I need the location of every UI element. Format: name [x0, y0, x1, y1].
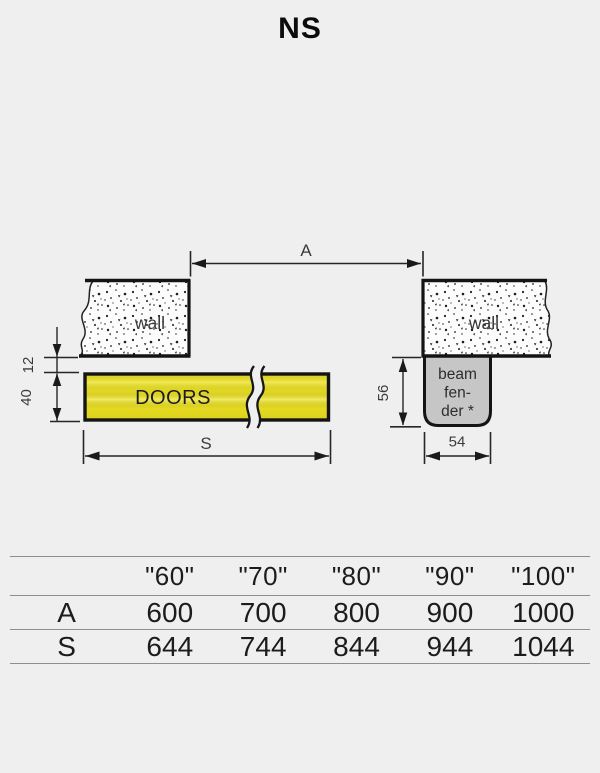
break-gap: [252, 369, 259, 425]
page-title: NS: [0, 12, 600, 46]
dim-56-arrow-up: [399, 359, 408, 372]
dim-56-arrow-down: [399, 413, 408, 426]
cell-s-80: 844: [310, 630, 403, 664]
col-header-60: "60": [123, 557, 216, 596]
table-header-row: "60" "70" "80" "90" "100": [10, 557, 590, 596]
cell-s-100: 1044: [497, 630, 590, 664]
table-corner-cell: [10, 557, 123, 596]
dim-s-arrow-right: [315, 452, 329, 461]
cell-a-100: 1000: [497, 596, 590, 630]
size-table-grid: "60" "70" "80" "90" "100" A 600 700 800 …: [10, 556, 590, 664]
technical-drawing: A S 12 40 56 54: [0, 230, 600, 475]
cell-s-60: 644: [123, 630, 216, 664]
doors-label: DOORS: [135, 387, 211, 409]
col-header-100: "100": [497, 557, 590, 596]
dim-s-arrow-left: [86, 452, 100, 461]
col-header-80: "80": [310, 557, 403, 596]
dim-a-label: A: [300, 241, 312, 260]
dim-40-value: 40: [18, 389, 35, 406]
dim-54-value: 54: [449, 434, 466, 451]
dim-s-label: S: [200, 434, 211, 453]
dim-54-arrow-left: [426, 452, 440, 461]
dim-a-arrow-left: [192, 259, 206, 268]
dim-56-value: 56: [375, 385, 392, 402]
dim-40-arrow-down: [53, 408, 62, 421]
dimension-12-40: 12 40: [18, 327, 80, 422]
table-row-a: A 600 700 800 900 1000: [10, 596, 590, 630]
wall-label-right: wall: [468, 313, 499, 333]
dim-12-arrow-down: [53, 344, 62, 357]
beam-fender-label-line3: der *: [441, 403, 474, 420]
cell-a-70: 700: [216, 596, 309, 630]
table-row-s: S 644 744 844 944 1044: [10, 630, 590, 664]
col-header-90: "90": [403, 557, 496, 596]
cell-a-60: 600: [123, 596, 216, 630]
dim-40-arrow-up: [53, 374, 62, 387]
cell-a-80: 800: [310, 596, 403, 630]
wall-label-left: wall: [134, 313, 165, 333]
dimension-56: 56: [375, 358, 421, 427]
cell-s-90: 944: [403, 630, 496, 664]
beam-fender-label-line1: beam: [438, 366, 477, 383]
size-table: "60" "70" "80" "90" "100" A 600 700 800 …: [10, 556, 590, 664]
dimension-s: S: [84, 430, 331, 464]
col-header-70: "70": [216, 557, 309, 596]
dim-a-arrow-right: [407, 259, 421, 268]
dimension-a: A: [191, 241, 424, 277]
beam-fender-label-line2: fen-: [444, 385, 471, 402]
dim-12-value: 12: [20, 357, 37, 374]
row-label-a: A: [10, 596, 123, 630]
row-label-s: S: [10, 630, 123, 664]
dimension-54: 54: [425, 432, 491, 464]
cell-a-90: 900: [403, 596, 496, 630]
dim-54-arrow-right: [475, 452, 489, 461]
cell-s-70: 744: [216, 630, 309, 664]
